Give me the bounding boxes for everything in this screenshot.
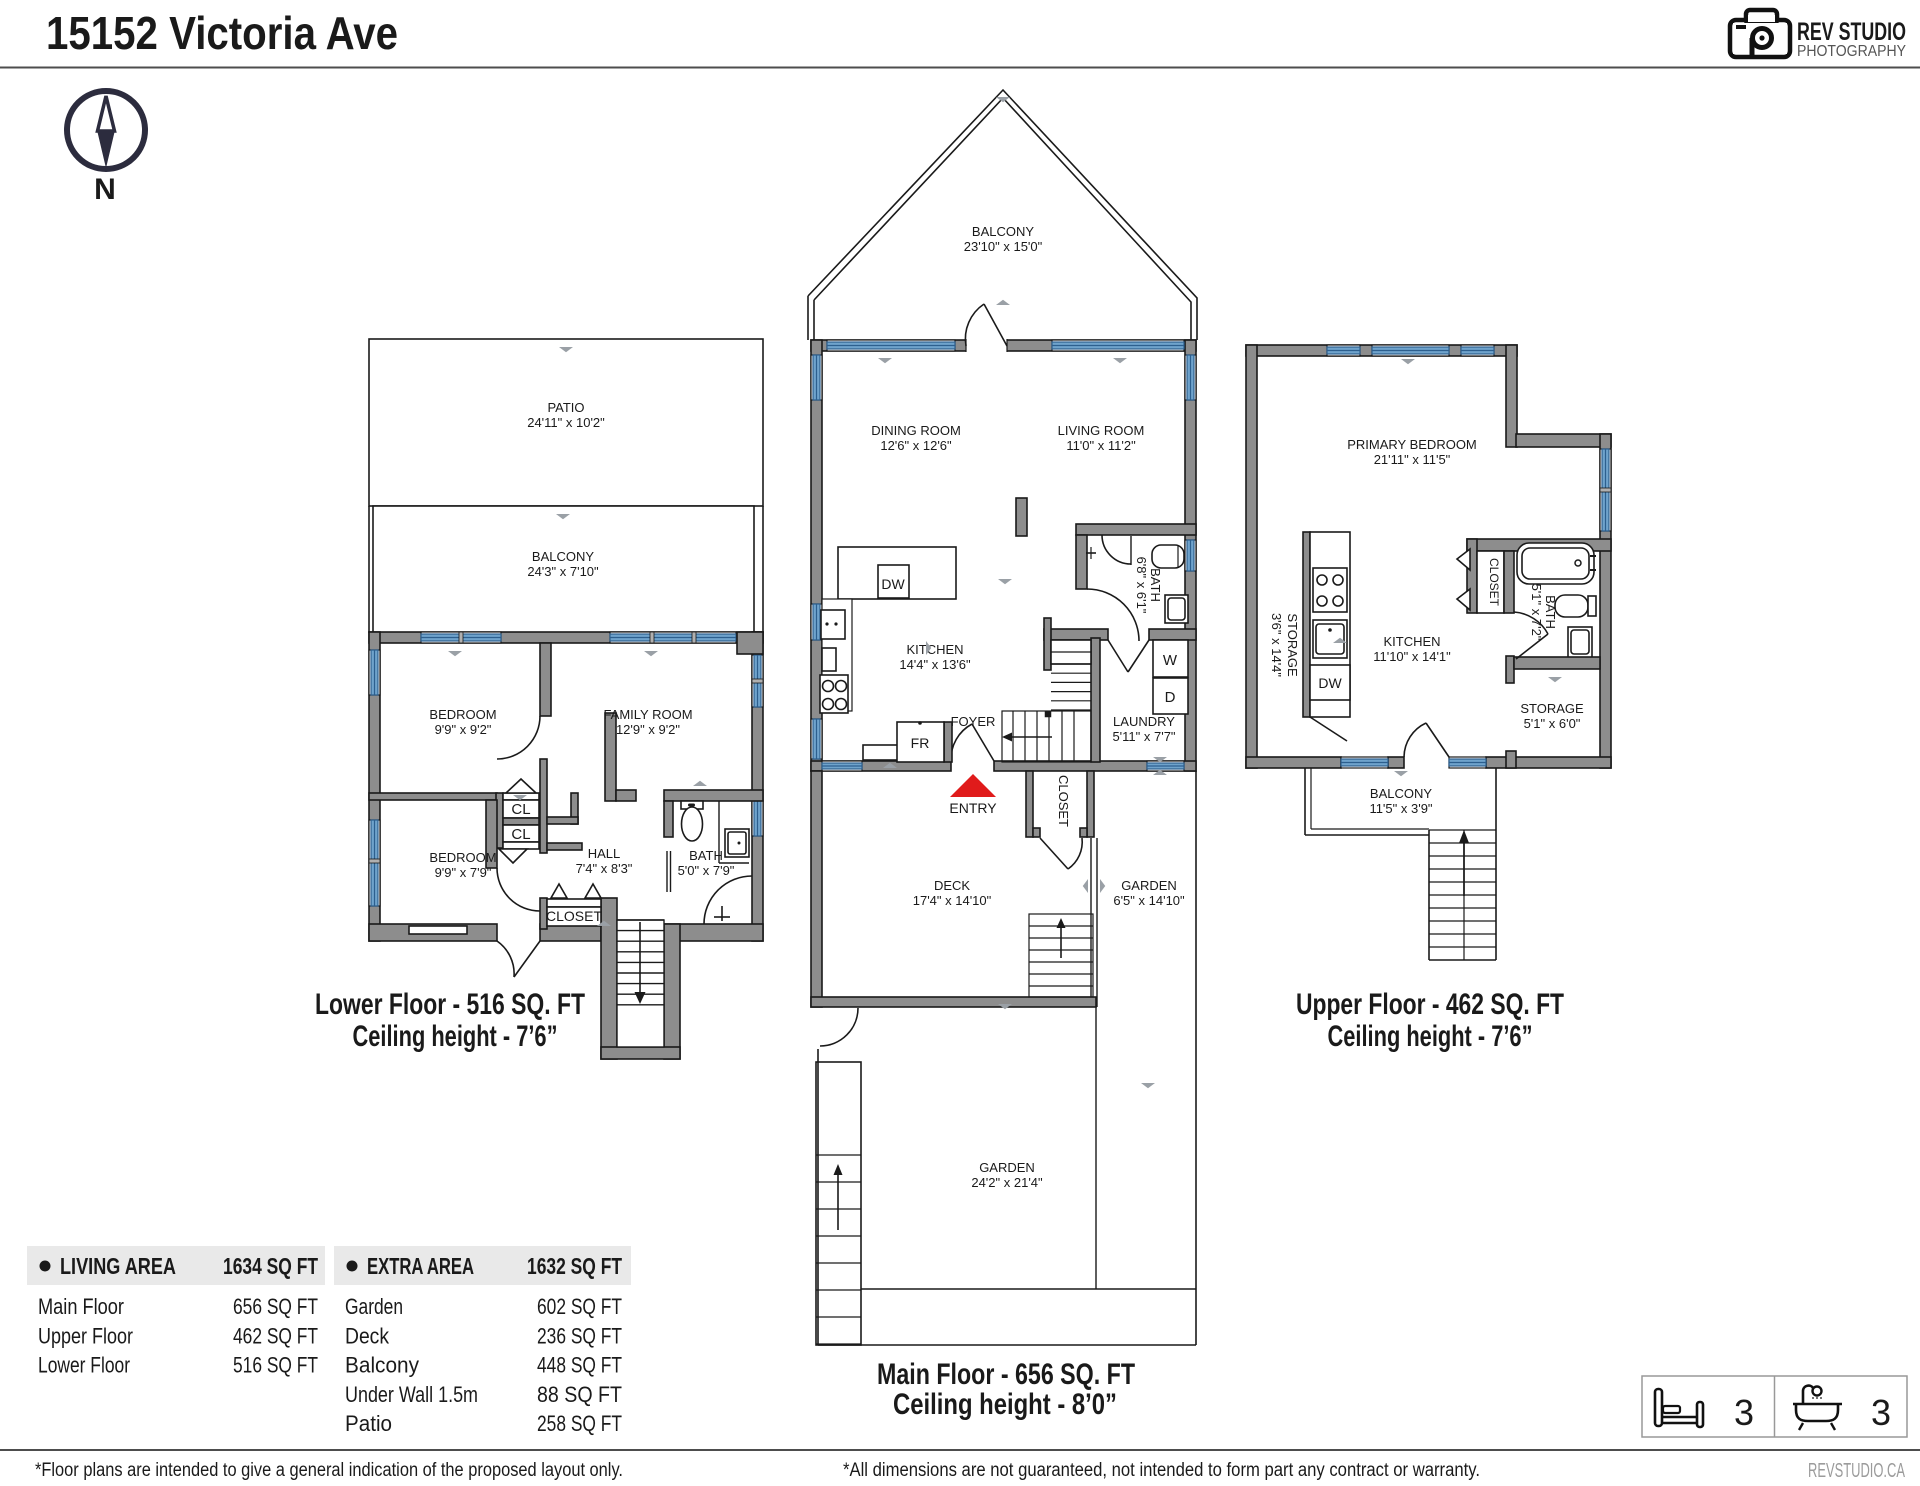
svg-text:FAMILY ROOM: FAMILY ROOM (603, 707, 692, 722)
svg-text:88 SQ FT: 88 SQ FT (537, 1382, 622, 1407)
svg-text:258 SQ FT: 258 SQ FT (537, 1411, 622, 1436)
svg-text:3: 3 (1871, 1392, 1891, 1433)
svg-text:CLOSET: CLOSET (1056, 775, 1071, 827)
svg-text:LIVING AREA: LIVING AREA (60, 1253, 176, 1279)
svg-text:Lower Floor: Lower Floor (38, 1353, 130, 1378)
svg-text:1634 SQ FT: 1634 SQ FT (223, 1253, 318, 1279)
svg-text:REV STUDIO: REV STUDIO (1797, 18, 1906, 46)
svg-text:11'10" x 14'1": 11'10" x 14'1" (1373, 649, 1451, 664)
svg-text:Main Floor - 656 SQ. FT: Main Floor - 656 SQ. FT (877, 1358, 1135, 1391)
svg-text:3'6" x 14'4": 3'6" x 14'4" (1269, 613, 1284, 677)
svg-text:KITCHEN: KITCHEN (906, 642, 963, 657)
svg-text:LAUNDRY: LAUNDRY (1113, 714, 1175, 729)
svg-text:PHOTOGRAPHY: PHOTOGRAPHY (1797, 43, 1906, 60)
svg-text:BALCONY: BALCONY (1370, 786, 1432, 801)
svg-text:5'1" x 6'0": 5'1" x 6'0" (1524, 716, 1581, 731)
svg-text:14'4" x 13'6": 14'4" x 13'6" (899, 657, 971, 672)
svg-text:DECK: DECK (934, 878, 970, 893)
svg-text:24'3" x 7'10": 24'3" x 7'10" (527, 564, 599, 579)
svg-text:LIVING ROOM: LIVING ROOM (1058, 423, 1145, 438)
svg-text:12'6" x 12'6": 12'6" x 12'6" (880, 438, 952, 453)
svg-text:KITCHEN: KITCHEN (1383, 634, 1440, 649)
svg-text:6'8" x 6'1": 6'8" x 6'1" (1134, 557, 1149, 614)
svg-text:BATH: BATH (1148, 568, 1163, 602)
svg-text:7'4" x 8'3": 7'4" x 8'3" (576, 861, 633, 876)
svg-text:BEDROOM: BEDROOM (429, 707, 496, 722)
svg-text:Garden: Garden (345, 1294, 403, 1319)
svg-text:GARDEN: GARDEN (1121, 878, 1177, 893)
svg-text:Main Floor: Main Floor (38, 1294, 124, 1319)
svg-text:Lower Floor - 516 SQ. FT: Lower Floor - 516 SQ. FT (315, 988, 585, 1021)
svg-text:*Floor plans are intended to g: *Floor plans are intended to give a gene… (35, 1460, 623, 1481)
svg-text:EXTRA AREA: EXTRA AREA (367, 1253, 474, 1279)
svg-text:BATH: BATH (1543, 595, 1558, 629)
svg-text:BALCONY: BALCONY (532, 549, 594, 564)
svg-text:236 SQ FT: 236 SQ FT (537, 1323, 622, 1348)
svg-text:15152 Victoria Ave: 15152 Victoria Ave (46, 7, 398, 59)
svg-text:448 SQ FT: 448 SQ FT (537, 1353, 622, 1378)
svg-text:Balcony: Balcony (345, 1353, 419, 1378)
svg-text:ENTRY: ENTRY (949, 800, 997, 816)
svg-text:CLOSET: CLOSET (1487, 558, 1501, 607)
svg-text:Ceiling height - 8’0”: Ceiling height - 8’0” (893, 1388, 1117, 1421)
svg-text:9'9" x 7'9": 9'9" x 7'9" (435, 865, 492, 880)
svg-text:21'11" x 11'5": 21'11" x 11'5" (1374, 452, 1451, 467)
svg-text:BALCONY: BALCONY (972, 224, 1034, 239)
svg-text:5'11" x 7'7": 5'11" x 7'7" (1112, 729, 1175, 744)
svg-text:CL: CL (511, 801, 530, 818)
svg-text:23'10" x 15'0": 23'10" x 15'0" (964, 239, 1043, 254)
svg-text:DINING ROOM: DINING ROOM (871, 423, 961, 438)
svg-text:24'2" x 21'4": 24'2" x 21'4" (971, 1175, 1043, 1190)
svg-text:STORAGE: STORAGE (1285, 613, 1300, 677)
svg-text:STORAGE: STORAGE (1520, 701, 1584, 716)
svg-text:Ceiling height - 7’6”: Ceiling height - 7’6” (353, 1020, 558, 1053)
svg-text:11'0" x 11'2": 11'0" x 11'2" (1066, 438, 1136, 453)
svg-text:W: W (1163, 652, 1178, 669)
svg-text:516 SQ FT: 516 SQ FT (233, 1353, 318, 1378)
svg-text:602 SQ FT: 602 SQ FT (537, 1294, 622, 1319)
svg-text:Patio: Patio (345, 1411, 392, 1436)
svg-text:GARDEN: GARDEN (979, 1160, 1035, 1175)
svg-text:DW: DW (881, 576, 905, 592)
svg-text:REVSTUDIO.CA: REVSTUDIO.CA (1808, 1460, 1905, 1482)
svg-text:5'0" x 7'9": 5'0" x 7'9" (678, 863, 735, 878)
svg-text:DW: DW (1318, 675, 1342, 691)
svg-text:Upper Floor: Upper Floor (38, 1323, 133, 1348)
svg-text:D: D (1165, 689, 1176, 706)
svg-text:24'11" x 10'2": 24'11" x 10'2" (527, 415, 605, 430)
svg-text:CL: CL (511, 826, 530, 843)
svg-text:CLOSET: CLOSET (546, 908, 602, 924)
svg-text:9'9" x 9'2": 9'9" x 9'2" (435, 722, 492, 737)
svg-text:1632 SQ FT: 1632 SQ FT (527, 1253, 622, 1279)
svg-text:462 SQ FT: 462 SQ FT (233, 1323, 318, 1348)
svg-text:12'9" x 9'2": 12'9" x 9'2" (616, 722, 680, 737)
svg-text:6'5" x 14'10": 6'5" x 14'10" (1113, 893, 1185, 908)
svg-text:FOYER: FOYER (951, 714, 996, 729)
svg-text:5'1" x 7'2": 5'1" x 7'2" (1529, 584, 1544, 641)
svg-text:PRIMARY BEDROOM: PRIMARY BEDROOM (1347, 437, 1477, 452)
svg-text:Upper Floor - 462 SQ. FT: Upper Floor - 462 SQ. FT (1296, 988, 1564, 1021)
svg-text:17'4" x 14'10": 17'4" x 14'10" (913, 893, 992, 908)
svg-text:656 SQ FT: 656 SQ FT (233, 1294, 318, 1319)
svg-text:BATH: BATH (689, 848, 723, 863)
svg-text:*All dimensions are not guaran: *All dimensions are not guaranteed, not … (843, 1460, 1480, 1481)
svg-text:PATIO: PATIO (547, 400, 584, 415)
svg-text:N: N (94, 173, 116, 206)
svg-text:HALL: HALL (588, 846, 621, 861)
svg-text:BEDROOM: BEDROOM (429, 850, 496, 865)
svg-text:11'5" x 3'9": 11'5" x 3'9" (1369, 801, 1432, 816)
svg-text:Ceiling height - 7’6”: Ceiling height - 7’6” (1328, 1020, 1533, 1053)
svg-text:3: 3 (1734, 1392, 1754, 1433)
svg-text:FR: FR (911, 735, 930, 751)
svg-text:Deck: Deck (345, 1323, 390, 1348)
svg-text:Under Wall 1.5m: Under Wall 1.5m (345, 1382, 478, 1407)
